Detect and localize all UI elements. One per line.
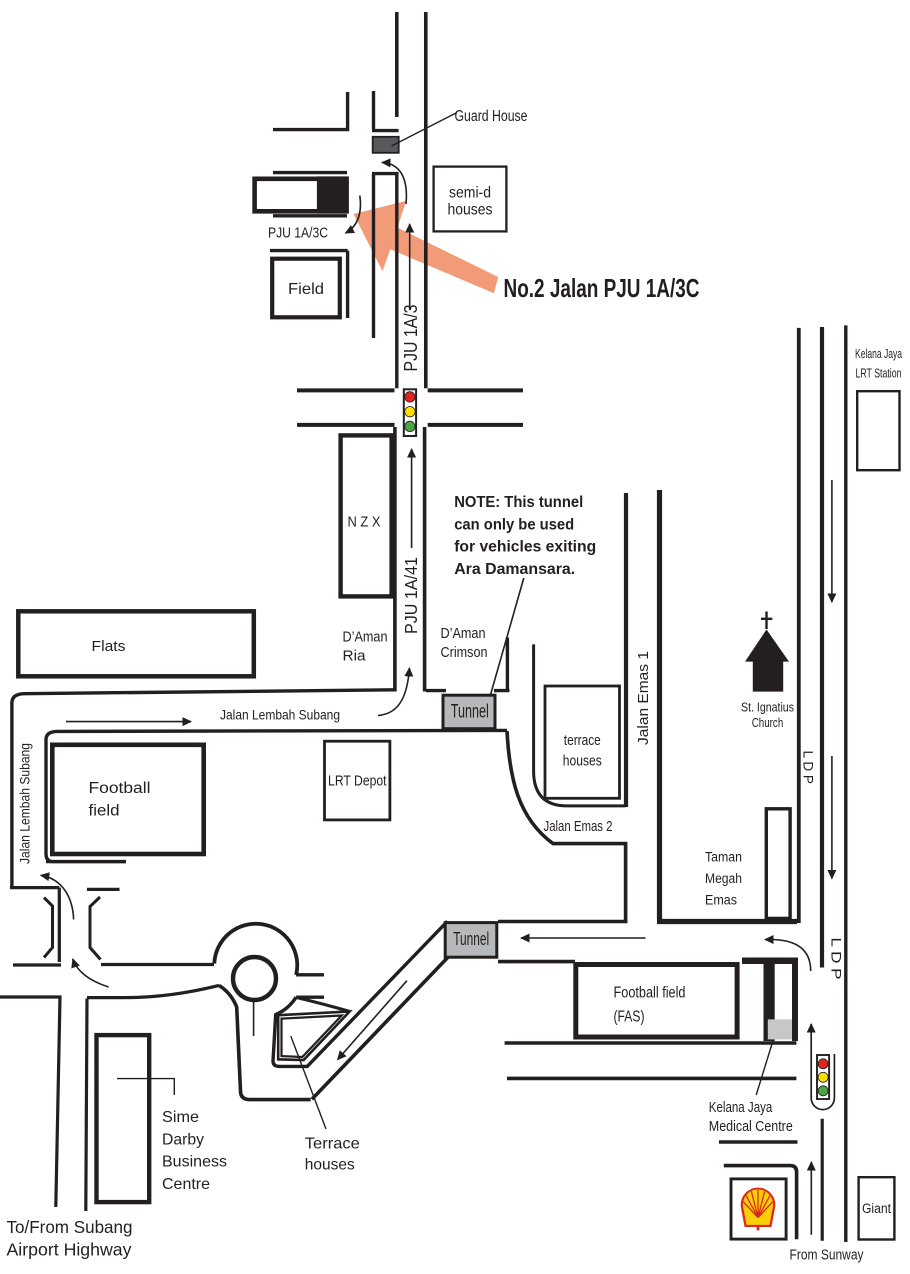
svg-text:Football field: Football field (614, 985, 686, 1002)
svg-text:PJU 1A/3C: PJU 1A/3C (268, 225, 328, 242)
svg-text:Tunnel: Tunnel (451, 702, 489, 723)
svg-text:Kelana Jaya: Kelana Jaya (709, 1099, 773, 1116)
svg-text:LRT Depot: LRT Depot (328, 773, 387, 790)
svg-text:Terrace: Terrace (305, 1136, 360, 1153)
svg-text:Crimson: Crimson (441, 645, 488, 661)
svg-text:PJU 1A/3: PJU 1A/3 (401, 305, 421, 372)
svg-text:Church: Church (752, 716, 784, 730)
svg-text:St. Ignatius: St. Ignatius (741, 701, 794, 715)
svg-text:Megah: Megah (705, 871, 742, 886)
svg-text:can only be used: can only be used (454, 516, 574, 533)
svg-text:terrace: terrace (564, 732, 601, 749)
svg-text:houses: houses (448, 202, 493, 219)
svg-text:Guard House: Guard House (455, 108, 528, 125)
svg-text:L D P: L D P (829, 938, 844, 980)
svg-text:Ara Damansara.: Ara Damansara. (454, 561, 575, 578)
svg-text:Football: Football (89, 780, 151, 797)
svg-text:L D P: L D P (801, 751, 816, 785)
svg-text:Taman: Taman (705, 850, 742, 865)
svg-text:Jalan Emas 1: Jalan Emas 1 (636, 651, 652, 745)
svg-text:Darby: Darby (162, 1131, 204, 1148)
svg-text:Jalan Lembah Subang: Jalan Lembah Subang (17, 743, 33, 864)
svg-text:Emas: Emas (705, 893, 737, 908)
svg-text:LRT Station: LRT Station (856, 366, 902, 381)
svg-text:houses: houses (563, 753, 602, 770)
svg-text:houses: houses (305, 1157, 355, 1174)
svg-text:(FAS): (FAS) (614, 1009, 645, 1026)
svg-text:Kelana Jaya: Kelana Jaya (855, 346, 902, 361)
svg-text:N Z X: N Z X (348, 514, 381, 531)
svg-text:Tunnel: Tunnel (453, 928, 489, 949)
svg-text:Jalan Lembah Subang: Jalan Lembah Subang (220, 707, 340, 723)
svg-text:Ria: Ria (343, 649, 367, 665)
svg-text:Jalan Emas 2: Jalan Emas 2 (544, 819, 613, 835)
svg-text:Centre: Centre (162, 1176, 210, 1193)
svg-text:Airport Highway: Airport Highway (7, 1240, 132, 1260)
svg-text:PJU 1A/41: PJU 1A/41 (401, 557, 421, 634)
svg-text:semi-d: semi-d (449, 185, 491, 202)
svg-text:Business: Business (162, 1154, 227, 1171)
svg-text:Medical Centre: Medical Centre (709, 1118, 793, 1135)
svg-text:field: field (89, 803, 120, 820)
svg-text:No.2 Jalan PJU 1A/3C: No.2 Jalan PJU 1A/3C (504, 273, 700, 303)
svg-text:NOTE: This tunnel: NOTE: This tunnel (454, 494, 583, 511)
svg-text:D’Aman: D’Aman (343, 630, 388, 646)
svg-text:Giant: Giant (862, 1201, 891, 1216)
svg-text:To/From Subang: To/From Subang (7, 1217, 133, 1237)
svg-text:D’Aman: D’Aman (441, 626, 486, 642)
svg-text:Field: Field (288, 281, 324, 298)
svg-text:Flats: Flats (92, 638, 126, 655)
svg-text:From Sunway: From Sunway (790, 1248, 865, 1264)
svg-text:Sime: Sime (162, 1109, 199, 1126)
svg-text:for vehicles exiting: for vehicles exiting (454, 539, 596, 556)
